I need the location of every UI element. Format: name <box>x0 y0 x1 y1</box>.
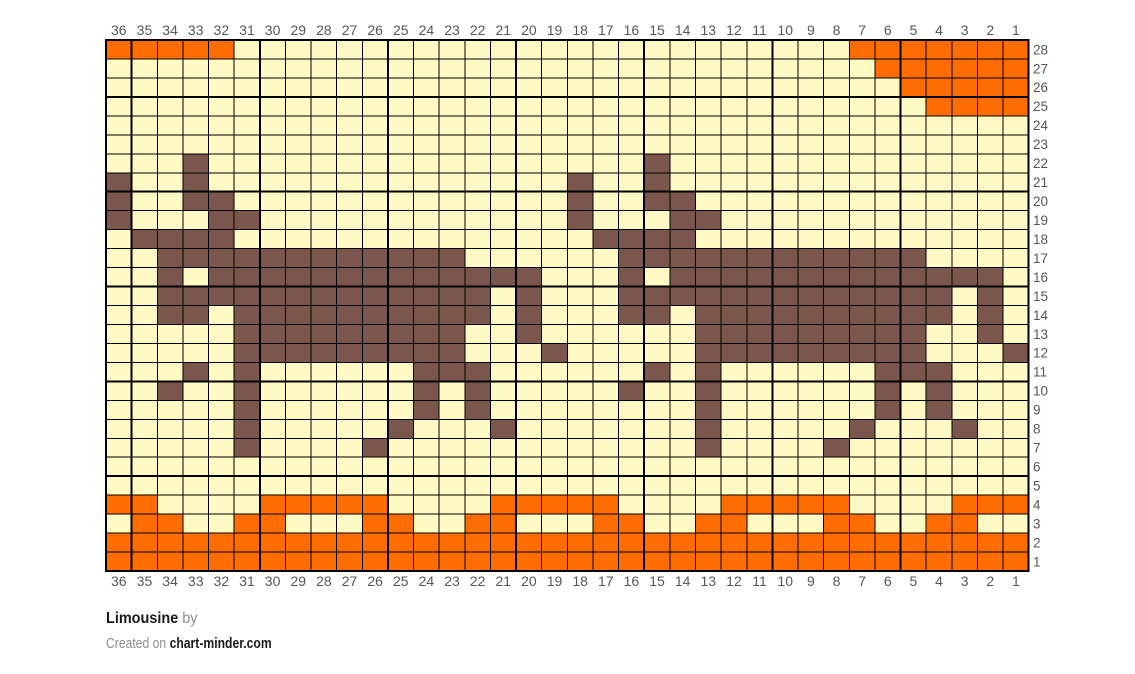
svg-text:9: 9 <box>807 22 815 38</box>
svg-text:21: 21 <box>1033 175 1048 190</box>
svg-text:8: 8 <box>833 22 841 38</box>
svg-text:25: 25 <box>1033 99 1048 114</box>
svg-text:24: 24 <box>419 573 435 589</box>
svg-text:14: 14 <box>675 22 691 38</box>
svg-text:18: 18 <box>572 22 588 38</box>
svg-text:25: 25 <box>393 573 409 589</box>
svg-text:6: 6 <box>884 22 892 38</box>
svg-text:7: 7 <box>1033 441 1041 456</box>
svg-text:1: 1 <box>1033 554 1041 569</box>
svg-text:26: 26 <box>367 573 383 589</box>
svg-text:14: 14 <box>675 573 691 589</box>
svg-text:33: 33 <box>188 573 204 589</box>
svg-text:28: 28 <box>1033 42 1048 57</box>
svg-text:15: 15 <box>649 573 665 589</box>
svg-text:10: 10 <box>1033 384 1048 399</box>
svg-text:3: 3 <box>1033 516 1041 531</box>
svg-text:1: 1 <box>1012 22 1020 38</box>
svg-text:17: 17 <box>1033 251 1048 266</box>
svg-text:12: 12 <box>726 573 742 589</box>
svg-text:10: 10 <box>777 573 793 589</box>
svg-text:27: 27 <box>342 573 358 589</box>
svg-text:12: 12 <box>726 22 742 38</box>
svg-text:13: 13 <box>1033 327 1048 342</box>
svg-text:5: 5 <box>909 22 917 38</box>
svg-text:17: 17 <box>598 573 614 589</box>
svg-text:14: 14 <box>1033 308 1049 323</box>
svg-text:3: 3 <box>961 22 969 38</box>
svg-text:30: 30 <box>265 22 281 38</box>
svg-text:22: 22 <box>470 22 486 38</box>
svg-text:26: 26 <box>1033 80 1048 95</box>
svg-text:20: 20 <box>521 22 537 38</box>
svg-text:7: 7 <box>858 573 866 589</box>
svg-text:18: 18 <box>1033 232 1048 247</box>
svg-text:32: 32 <box>214 573 230 589</box>
svg-text:2: 2 <box>986 22 994 38</box>
svg-text:23: 23 <box>1033 137 1048 152</box>
svg-text:28: 28 <box>316 22 332 38</box>
svg-text:9: 9 <box>807 573 815 589</box>
svg-text:2: 2 <box>986 573 994 589</box>
svg-text:28: 28 <box>316 573 332 589</box>
svg-text:2: 2 <box>1033 535 1041 550</box>
svg-text:3: 3 <box>961 573 969 589</box>
svg-text:23: 23 <box>444 573 460 589</box>
svg-text:36: 36 <box>111 22 127 38</box>
svg-text:11: 11 <box>1033 365 1047 380</box>
svg-text:16: 16 <box>624 573 640 589</box>
svg-text:19: 19 <box>1033 213 1048 228</box>
svg-text:20: 20 <box>1033 194 1048 209</box>
svg-text:6: 6 <box>1033 460 1041 475</box>
svg-text:27: 27 <box>1033 61 1048 76</box>
svg-text:7: 7 <box>858 22 866 38</box>
svg-text:31: 31 <box>239 573 255 589</box>
svg-text:36: 36 <box>111 573 127 589</box>
svg-text:31: 31 <box>239 22 255 38</box>
svg-text:11: 11 <box>752 22 767 38</box>
svg-text:13: 13 <box>701 22 717 38</box>
svg-text:21: 21 <box>495 22 511 38</box>
svg-text:32: 32 <box>214 22 230 38</box>
svg-text:1: 1 <box>1012 573 1020 589</box>
svg-text:20: 20 <box>521 573 537 589</box>
svg-text:18: 18 <box>572 573 588 589</box>
svg-text:22: 22 <box>1033 156 1048 171</box>
svg-text:35: 35 <box>137 22 153 38</box>
svg-text:27: 27 <box>342 22 358 38</box>
svg-text:24: 24 <box>419 22 435 38</box>
svg-text:33: 33 <box>188 22 204 38</box>
svg-text:9: 9 <box>1033 403 1041 418</box>
svg-text:15: 15 <box>1033 289 1048 304</box>
svg-text:19: 19 <box>547 573 563 589</box>
svg-text:29: 29 <box>290 573 306 589</box>
svg-text:26: 26 <box>367 22 383 38</box>
svg-text:35: 35 <box>137 573 153 589</box>
svg-text:34: 34 <box>162 22 178 38</box>
svg-text:25: 25 <box>393 22 409 38</box>
svg-text:11: 11 <box>752 573 767 589</box>
svg-text:16: 16 <box>624 22 640 38</box>
svg-text:4: 4 <box>935 573 943 589</box>
svg-text:34: 34 <box>162 573 178 589</box>
svg-text:24: 24 <box>1033 118 1049 133</box>
svg-text:8: 8 <box>833 573 841 589</box>
svg-text:4: 4 <box>935 22 943 38</box>
svg-text:22: 22 <box>470 573 486 589</box>
svg-text:23: 23 <box>444 22 460 38</box>
svg-text:19: 19 <box>547 22 563 38</box>
svg-text:13: 13 <box>701 573 717 589</box>
svg-text:12: 12 <box>1033 346 1048 361</box>
svg-text:17: 17 <box>598 22 614 38</box>
svg-text:30: 30 <box>265 573 281 589</box>
svg-text:15: 15 <box>649 22 665 38</box>
svg-text:10: 10 <box>777 22 793 38</box>
svg-text:4: 4 <box>1033 497 1041 512</box>
svg-text:5: 5 <box>1033 478 1041 493</box>
svg-text:21: 21 <box>495 573 511 589</box>
svg-text:5: 5 <box>909 573 917 589</box>
svg-text:6: 6 <box>884 573 892 589</box>
svg-text:16: 16 <box>1033 270 1048 285</box>
svg-text:8: 8 <box>1033 422 1041 437</box>
svg-text:29: 29 <box>290 22 306 38</box>
